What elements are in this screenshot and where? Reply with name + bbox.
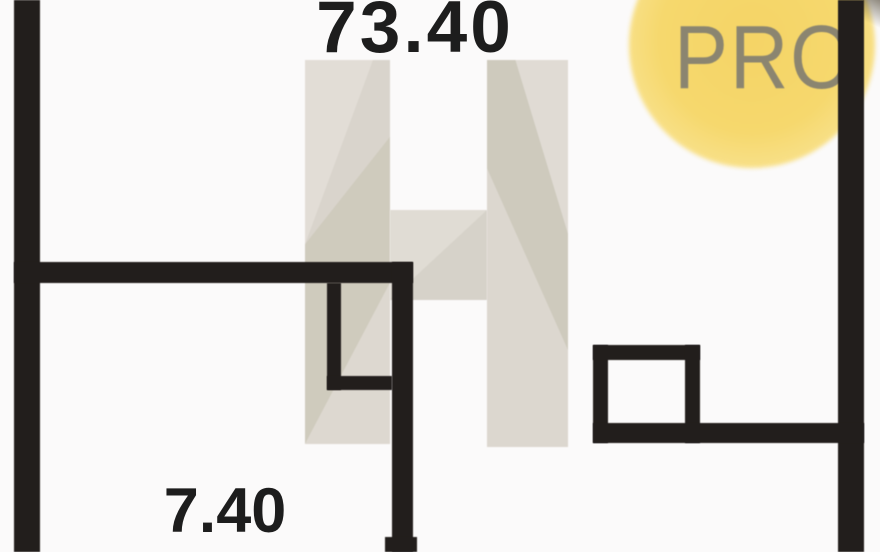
corner-shade: [863, 0, 880, 30]
duct-wall-left: [327, 283, 341, 390]
floorplan-image[interactable]: PRO 73.40 7.40: [0, 0, 880, 552]
total-area-label: 73.40: [305, 0, 525, 64]
wall-horizontal-lower: [593, 423, 864, 443]
wall-right: [838, 0, 864, 552]
shaft-wall-top: [593, 345, 700, 360]
duct-wall-bottom: [327, 376, 392, 390]
wall-foot: [385, 537, 417, 552]
pro-badge-label: PRO: [674, 8, 819, 108]
room-area-label: 7.40: [155, 480, 295, 543]
wall-horizontal-upper: [14, 262, 413, 283]
watermark-column-right: [487, 60, 568, 447]
wall-vertical-middle: [392, 262, 413, 552]
